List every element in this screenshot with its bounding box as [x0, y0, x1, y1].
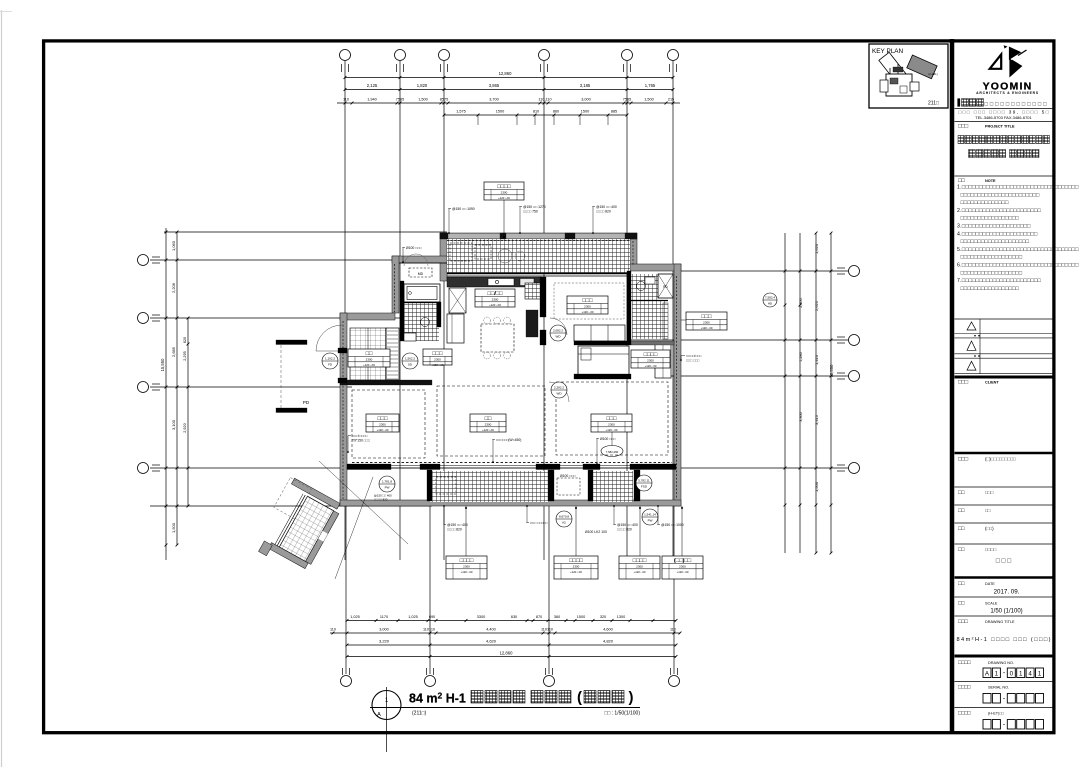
- svg-text:□□□: □□□: [701, 314, 712, 320]
- svg-text:2,625: 2,625: [814, 300, 819, 311]
- svg-text:320: 320: [600, 615, 606, 619]
- svg-text:1,562.2: 1,562.2: [405, 357, 415, 361]
- svg-text:2,295: 2,295: [183, 351, 187, 361]
- svg-text:SERIAL NO.: SERIAL NO.: [988, 686, 1009, 690]
- svg-text:2300: 2300: [501, 191, 508, 195]
- svg-text:2300: 2300: [636, 565, 643, 569]
- svg-text:3,000: 3,000: [581, 98, 591, 102]
- svg-text:1,102.2: 1,102.2: [325, 357, 335, 361]
- svg-text:1/50 (1/100): 1/50 (1/100): [990, 609, 1022, 615]
- svg-text:1: 1: [995, 670, 999, 677]
- svg-text:5.□□□□□□□□□□□□□□□□□□□□□□□□□□□□: 5.□□□□□□□□□□□□□□□□□□□□□□□□□□□□□□□□□□: [957, 247, 1079, 253]
- svg-text:4,620: 4,620: [486, 639, 497, 644]
- svg-text:□□: □□: [958, 178, 965, 184]
- svg-text:7.□□□□□□□□□□□□□□□□□□□□□□□: 7.□□□□□□□□□□□□□□□□□□□□□□□: [957, 278, 1041, 284]
- svg-text:): ): [629, 689, 634, 706]
- svg-text:PW: PW: [385, 486, 390, 490]
- svg-text:+120 □±0: +120 □±0: [377, 428, 389, 432]
- svg-text:□□□: □□□: [958, 457, 969, 463]
- svg-text:(H-ET)□□: (H-ET)□□: [988, 712, 1005, 716]
- svg-text:□□ □□ 820: □□ □□ 820: [374, 498, 388, 502]
- svg-text:3,300: 3,300: [799, 412, 803, 422]
- svg-text:FSD: FSD: [641, 485, 648, 489]
- svg-text:2300: 2300: [492, 298, 499, 302]
- svg-text:@150 □□ 1090: @150 □□ 1090: [452, 207, 475, 211]
- svg-text:□□□ □□□: □□□ □□□: [686, 359, 699, 363]
- svg-text:□□□□: □□□□: [644, 352, 658, 358]
- svg-text:2,685: 2,685: [171, 346, 176, 357]
- svg-text:3,000: 3,000: [379, 628, 389, 632]
- svg-text:+120 □±0: +120 □±0: [498, 196, 510, 200]
- svg-text:215: 215: [668, 98, 674, 102]
- svg-text:3,185: 3,185: [580, 83, 591, 88]
- svg-text:WD: WD: [557, 392, 563, 396]
- svg-text:110,110: 110,110: [538, 98, 551, 102]
- svg-text:□□□□□□□□□□□□□□□□□□□□: □□□□□□□□□□□□□□□□□□□□: [957, 239, 1030, 245]
- svg-text:□□□□□□□□□□□□□□□□□□: □□□□□□□□□□□□□□□□□□: [957, 255, 1023, 261]
- svg-text:□□□□: □□□□: [569, 558, 583, 564]
- svg-text:3.□□□□□□□□□□□□□□□□□□□□: 3.□□□□□□□□□□□□□□□□□□□□: [957, 224, 1031, 230]
- svg-text:(2-2BL): (2-2BL): [928, 72, 937, 76]
- svg-text:DRAWING NO.: DRAWING NO.: [988, 661, 1014, 665]
- svg-text:1,025: 1,025: [350, 615, 360, 619]
- svg-text:□□□□□□□□□□□□□□□□□□: □□□□□□□□□□□□□□□□□□: [957, 270, 1023, 276]
- svg-text:PROJECT TITLE: PROJECT TITLE: [985, 125, 1015, 129]
- svg-text:□□□: □□□: [958, 619, 969, 625]
- svg-text:□□□□ 820: □□□□ 820: [447, 528, 462, 532]
- svg-text:8,670.8: 8,670.8: [559, 515, 569, 519]
- svg-text:7585: 7585: [623, 98, 631, 102]
- svg-text:1500: 1500: [496, 110, 504, 114]
- svg-text:4,400: 4,400: [486, 628, 496, 632]
- svg-text:@150 □□ 1000: @150 □□ 1000: [661, 523, 684, 527]
- svg-text:1,500: 1,500: [171, 522, 176, 533]
- svg-text:1170: 1170: [380, 615, 388, 619]
- svg-text:1,575: 1,575: [456, 110, 466, 114]
- svg-text:2300: 2300: [679, 565, 686, 569]
- svg-text:1,280: 1,280: [799, 352, 803, 362]
- svg-text:110110: 110110: [541, 628, 553, 632]
- svg-text:□□□□□□□□□□□□□□□□□□□□□□□: □□□□□□□□□□□□□□□□□□□□□□□: [957, 192, 1040, 198]
- svg-text:+120 □±0: +120 □±0: [701, 326, 713, 330]
- svg-text:860: 860: [553, 110, 559, 114]
- svg-text:□□□: □□□: [958, 380, 969, 386]
- svg-text:1,500: 1,500: [814, 481, 819, 492]
- svg-text:4.□□□□□□□□□□□□□□□□□□□□□□: 4.□□□□□□□□□□□□□□□□□□□□□□: [957, 231, 1038, 237]
- svg-text:1: 1: [1038, 670, 1042, 677]
- svg-text:A2: A2: [562, 521, 566, 525]
- svg-text:+120 □±0: +120 □±0: [634, 570, 646, 574]
- svg-text:(211□): (211□): [412, 711, 427, 717]
- svg-text:12,860: 12,860: [500, 651, 513, 656]
- svg-text:1,620: 1,620: [814, 243, 819, 254]
- svg-text:□□: □□: [958, 547, 965, 553]
- svg-text:@150 □□ 400: @150 □□ 400: [447, 523, 468, 527]
- svg-text:□□□/□□□□: □□□/□□□□: [352, 434, 367, 438]
- svg-text:2,206: 2,206: [171, 282, 176, 293]
- svg-text:1,500: 1,500: [418, 98, 428, 102]
- svg-text:+120 □±0: +120 □±0: [461, 570, 473, 574]
- svg-text:3,220: 3,220: [379, 639, 390, 644]
- svg-text:360: 360: [554, 615, 560, 619]
- svg-text:8575: 8575: [440, 98, 448, 102]
- svg-text:1,025: 1,025: [408, 615, 418, 619]
- svg-text:3,865: 3,865: [489, 83, 500, 88]
- svg-text:□□□□□□(W=450): □□□□□□(W=450): [496, 438, 521, 442]
- svg-text:□□: □□: [958, 526, 965, 532]
- svg-text:WD: WD: [556, 335, 562, 339]
- svg-text:84 m2 H-1: 84 m2 H-1: [409, 691, 466, 706]
- svg-text:2,282.2: 2,282.2: [554, 386, 564, 390]
- svg-text:0: 0: [1010, 670, 1014, 677]
- svg-text:(□□)□□: (□□)□□: [674, 558, 692, 564]
- svg-text:690: 690: [429, 615, 435, 619]
- svg-text:MD: MD: [418, 272, 424, 276]
- svg-text:□□□□ 820: □□□□ 820: [617, 528, 632, 532]
- svg-text:2300: 2300: [608, 423, 615, 427]
- svg-text:1: 1: [1019, 670, 1023, 677]
- svg-text:3,100: 3,100: [171, 419, 176, 430]
- svg-text:@150 □□ 400: @150 □□ 400: [617, 523, 638, 527]
- svg-text:DATE: DATE: [985, 582, 995, 586]
- svg-text:□□/□□: □□/□□: [487, 291, 503, 297]
- svg-text:□□□□ 820: □□□□ 820: [596, 210, 611, 214]
- svg-text:□□□□ 750: □□□□ 750: [523, 210, 538, 214]
- svg-text:□□□: □□□: [958, 124, 969, 130]
- svg-text:2,920: 2,920: [183, 423, 187, 433]
- svg-text:870: 870: [536, 615, 542, 619]
- svg-text:12,860: 12,860: [499, 71, 512, 76]
- svg-text:2300: 2300: [463, 565, 470, 569]
- svg-text:1,500: 1,500: [644, 98, 654, 102]
- svg-text:(: (: [577, 689, 582, 706]
- svg-text:CLIENT: CLIENT: [985, 381, 999, 385]
- svg-text:□□: □□: [985, 508, 991, 513]
- svg-text:1,410: 1,410: [814, 354, 819, 365]
- svg-text:110: 110: [670, 628, 676, 632]
- svg-text:+120 □±0: +120 □±0: [489, 303, 501, 307]
- svg-text:□□□□□□□□□□□□□□□□□: □□□□□□□□□□□□□□□□□: [957, 216, 1019, 222]
- svg-text:□□: □□: [366, 351, 373, 357]
- svg-text:□ □ □: □ □ □: [996, 558, 1011, 565]
- svg-text:2,300: 2,300: [799, 298, 803, 308]
- svg-text:PD: PD: [663, 285, 668, 289]
- svg-text:110: 110: [343, 98, 349, 102]
- svg-text:2300: 2300: [703, 321, 710, 325]
- svg-text:SCALE: SCALE: [985, 602, 998, 606]
- svg-text:+120 □±0: +120 □±0: [570, 570, 582, 574]
- svg-text:1,940: 1,940: [367, 98, 377, 102]
- svg-text:110110: 110110: [423, 628, 435, 632]
- svg-text:NOTE: NOTE: [985, 179, 996, 183]
- svg-text:□□: □□: [958, 490, 965, 496]
- svg-text:+120 □±0: +120 □±0: [582, 310, 594, 314]
- svg-text:□□□□: □□□□: [958, 711, 971, 717]
- svg-text:2300: 2300: [366, 358, 373, 362]
- svg-text:T9*150 □□□: T9*150 □□□: [352, 439, 370, 443]
- svg-text:2300: 2300: [584, 305, 591, 309]
- svg-text:+120 □±0: +120 □±0: [606, 428, 618, 432]
- svg-text:7585: 7585: [396, 98, 404, 102]
- svg-text:2300: 2300: [573, 565, 580, 569]
- svg-text:3300: 3300: [477, 615, 485, 619]
- svg-text:+120 □±0: +120 □±0: [482, 428, 494, 432]
- svg-text:110: 110: [330, 628, 336, 632]
- svg-text:□□□ □□□ □□□□ 39, □□□□ 5□: □□□ □□□ □□□□ 39, □□□□ 5□: [959, 110, 1049, 115]
- svg-text:(□)□□□□□□□□□: (□)□□□□□□□□□: [985, 457, 1016, 462]
- svg-text:1500: 1500: [581, 110, 589, 114]
- svg-text:□□□□: □□□□: [497, 184, 511, 190]
- svg-text:+120 □±0: +120 □±0: [432, 363, 444, 367]
- svg-text:6.□□□□□□□□□□□□□□□□□□□□□□□□□□□□: 6.□□□□□□□□□□□□□□□□□□□□□□□□□□□□□□□□□□: [957, 263, 1079, 269]
- svg-text:1,781.8: 1,781.8: [382, 480, 392, 484]
- svg-text:Ø100 □□□: Ø100 □□□: [406, 246, 421, 250]
- svg-text:5,782.11: 5,782.11: [638, 479, 650, 483]
- svg-text:1500: 1500: [577, 615, 585, 619]
- svg-text:3,415: 3,415: [814, 414, 819, 425]
- svg-text:□□□□: □□□□: [958, 685, 971, 691]
- svg-text:□□□ □□□□□: □□□ □□□□□: [530, 521, 547, 525]
- svg-text:□□□□□□□□□□□□□□: □□□□□□□□□□□□□□: [957, 200, 1009, 206]
- svg-text:□□: □□: [958, 581, 965, 587]
- svg-text:(□□): (□□): [985, 526, 994, 531]
- svg-text:□□□□/□□□: □□□□/□□□: [686, 354, 701, 358]
- svg-text:□□: □□: [958, 508, 965, 514]
- svg-text:+120 □±0: +120 □±0: [645, 364, 657, 368]
- svg-text:2,125: 2,125: [367, 83, 378, 88]
- svg-text:1,541.14: 1,541.14: [644, 513, 656, 517]
- svg-text:□□: □□: [485, 416, 492, 422]
- svg-text:□□□□: □□□□: [633, 558, 647, 564]
- svg-text:A: A: [377, 712, 381, 718]
- svg-text:1,060: 1,060: [171, 240, 176, 251]
- svg-text:□□□: □□□: [377, 416, 388, 422]
- svg-text:620: 620: [183, 337, 187, 343]
- svg-text:TEL.3486-5703 FAX.3486-6701: TEL.3486-5703 FAX.3486-6701: [975, 115, 1032, 120]
- svg-text:2.□□□□□□□□□□□□□□□□□□□□□□□: 2.□□□□□□□□□□□□□□□□□□□□□□□: [957, 208, 1041, 214]
- svg-text:□□□: □□□: [606, 416, 617, 422]
- svg-text:2300: 2300: [647, 359, 654, 363]
- svg-text:885: 885: [611, 110, 617, 114]
- svg-text:211□: 211□: [928, 101, 939, 107]
- svg-text:PW: PW: [648, 519, 653, 523]
- svg-text:2300: 2300: [434, 358, 441, 362]
- svg-text:7,582.4: 7,582.4: [765, 296, 775, 300]
- svg-text:2300: 2300: [485, 423, 492, 427]
- svg-text:@150 □□ 1270: @150 □□ 1270: [523, 205, 546, 209]
- svg-text:Ø100 □□□: Ø100 □□□: [560, 474, 575, 478]
- svg-text:+120 □±0: +120 □±0: [677, 570, 689, 574]
- svg-text:2,082.2: 2,082.2: [553, 329, 563, 333]
- svg-text:1300: 1300: [617, 615, 625, 619]
- svg-text:□□: □□: [958, 601, 965, 607]
- svg-text:□□□: □□□: [985, 490, 994, 495]
- svg-text:□□□□: □□□□: [985, 547, 996, 552]
- svg-text:@150 □□ 400: @150 □□ 400: [596, 205, 617, 209]
- svg-text:1.□□□□□□□□□□□□□□□□□□□□□□□□□□□□: 1.□□□□□□□□□□□□□□□□□□□□□□□□□□□□□□□□□□: [957, 185, 1079, 191]
- svg-text:PD: PD: [303, 400, 310, 405]
- svg-text:□□□: □□□: [432, 351, 443, 357]
- svg-text:Ø100 □□□: Ø100 □□□: [600, 437, 615, 441]
- svg-text:□□□: □□□: [582, 298, 593, 304]
- svg-text:2017. 09.: 2017. 09.: [994, 589, 1020, 596]
- svg-text:630: 630: [511, 615, 517, 619]
- svg-text:4,820: 4,820: [603, 639, 614, 644]
- svg-text:□□ : 1/50(1/100): □□ : 1/50(1/100): [604, 711, 640, 717]
- svg-text:810: 810: [533, 110, 539, 114]
- svg-text:□□□□□□□□□□□□□□□□□: □□□□□□□□□□□□□□□□□: [957, 286, 1019, 292]
- svg-text:15,550: 15,550: [160, 358, 165, 371]
- svg-text:ARCHITECTS & ENGINEERS: ARCHITECTS & ENGINEERS: [976, 91, 1039, 95]
- svg-text:3,700: 3,700: [489, 98, 499, 102]
- svg-text:4,600: 4,600: [603, 628, 613, 632]
- svg-text:1,820: 1,820: [417, 83, 428, 88]
- svg-text:DRAWING TITLE: DRAWING TITLE: [985, 620, 1015, 624]
- svg-text:4: 4: [1028, 670, 1032, 677]
- svg-text:1,765: 1,765: [645, 83, 656, 88]
- svg-text:+120 □±0: +120 □±0: [363, 363, 375, 367]
- svg-text:7,582,460: 7,582,460: [606, 450, 619, 454]
- svg-text:□□□□: □□□□: [460, 558, 474, 564]
- svg-text:Ø100 LK2 100: Ø100 LK2 100: [585, 530, 607, 534]
- svg-text:□□□□: □□□□: [958, 660, 971, 666]
- svg-text:2300: 2300: [379, 423, 386, 427]
